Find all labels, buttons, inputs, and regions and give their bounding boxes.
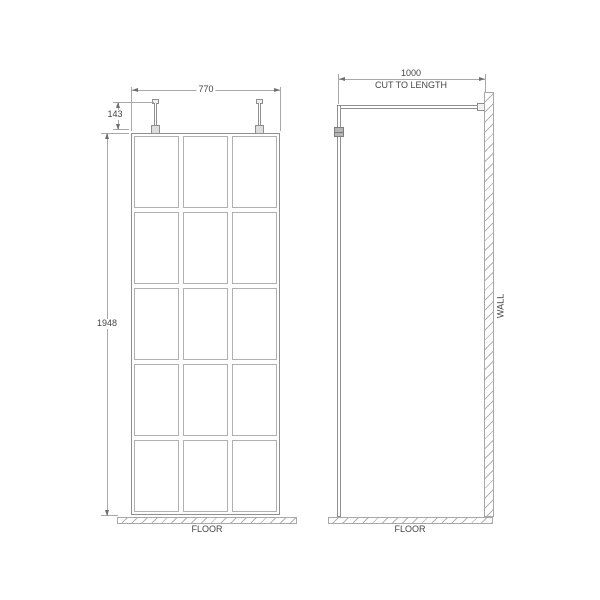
support-arm (340, 105, 478, 109)
arrowhead-down-icon (116, 124, 120, 130)
technical-drawing-shower-screen: 770 143 1948 FLOOR WALL 1000 CUT TO LENG… (0, 0, 600, 600)
extension-line (280, 87, 281, 131)
pin-shaft (154, 103, 157, 126)
height-dimension-label: 1948 (95, 319, 119, 329)
pin-height-dimension-label: 143 (105, 110, 124, 120)
extension-line (485, 74, 486, 92)
front-view-panel-frame (131, 133, 280, 515)
glass-pane (232, 212, 277, 284)
glass-pane (183, 212, 228, 284)
extension-line (101, 515, 118, 516)
arrowhead-up-icon (116, 102, 120, 108)
side-view-panel-edge (337, 105, 341, 517)
glass-pane (232, 288, 277, 360)
glass-pane (134, 136, 179, 208)
glass-pane (183, 136, 228, 208)
arrowhead-right-icon (479, 77, 485, 81)
glass-pane (183, 288, 228, 360)
glass-pane (134, 364, 179, 436)
wall-hatch (484, 92, 494, 517)
pin-clamp (151, 125, 160, 134)
arm-glass-clamp (334, 127, 344, 137)
pin-clamp (255, 125, 264, 134)
floor-hatch-side (328, 517, 493, 524)
glass-pane (183, 364, 228, 436)
pin-shaft (258, 103, 261, 126)
floor-hatch-front (117, 517, 297, 524)
width-dimension-label: 770 (196, 85, 215, 95)
wall-label: WALL (497, 294, 506, 318)
glass-grid (134, 136, 277, 512)
floor-label-side: FLOOR (394, 525, 425, 535)
glass-pane (232, 136, 277, 208)
extension-line (131, 87, 132, 131)
glass-pane (232, 440, 277, 512)
arm-length-note-label: CUT TO LENGTH (373, 81, 449, 91)
arrowhead-right-icon (274, 88, 280, 92)
arrowhead-down-icon (105, 510, 109, 516)
floor-label-front: FLOOR (191, 525, 222, 535)
arrowhead-up-icon (105, 133, 109, 139)
arrowhead-left-icon (339, 77, 345, 81)
glass-pane (134, 212, 179, 284)
arrowhead-left-icon (132, 88, 138, 92)
arm-length-dimension-label: 1000 (399, 69, 423, 79)
glass-pane (232, 364, 277, 436)
glass-pane (183, 440, 228, 512)
glass-pane (134, 288, 179, 360)
glass-pane (134, 440, 179, 512)
